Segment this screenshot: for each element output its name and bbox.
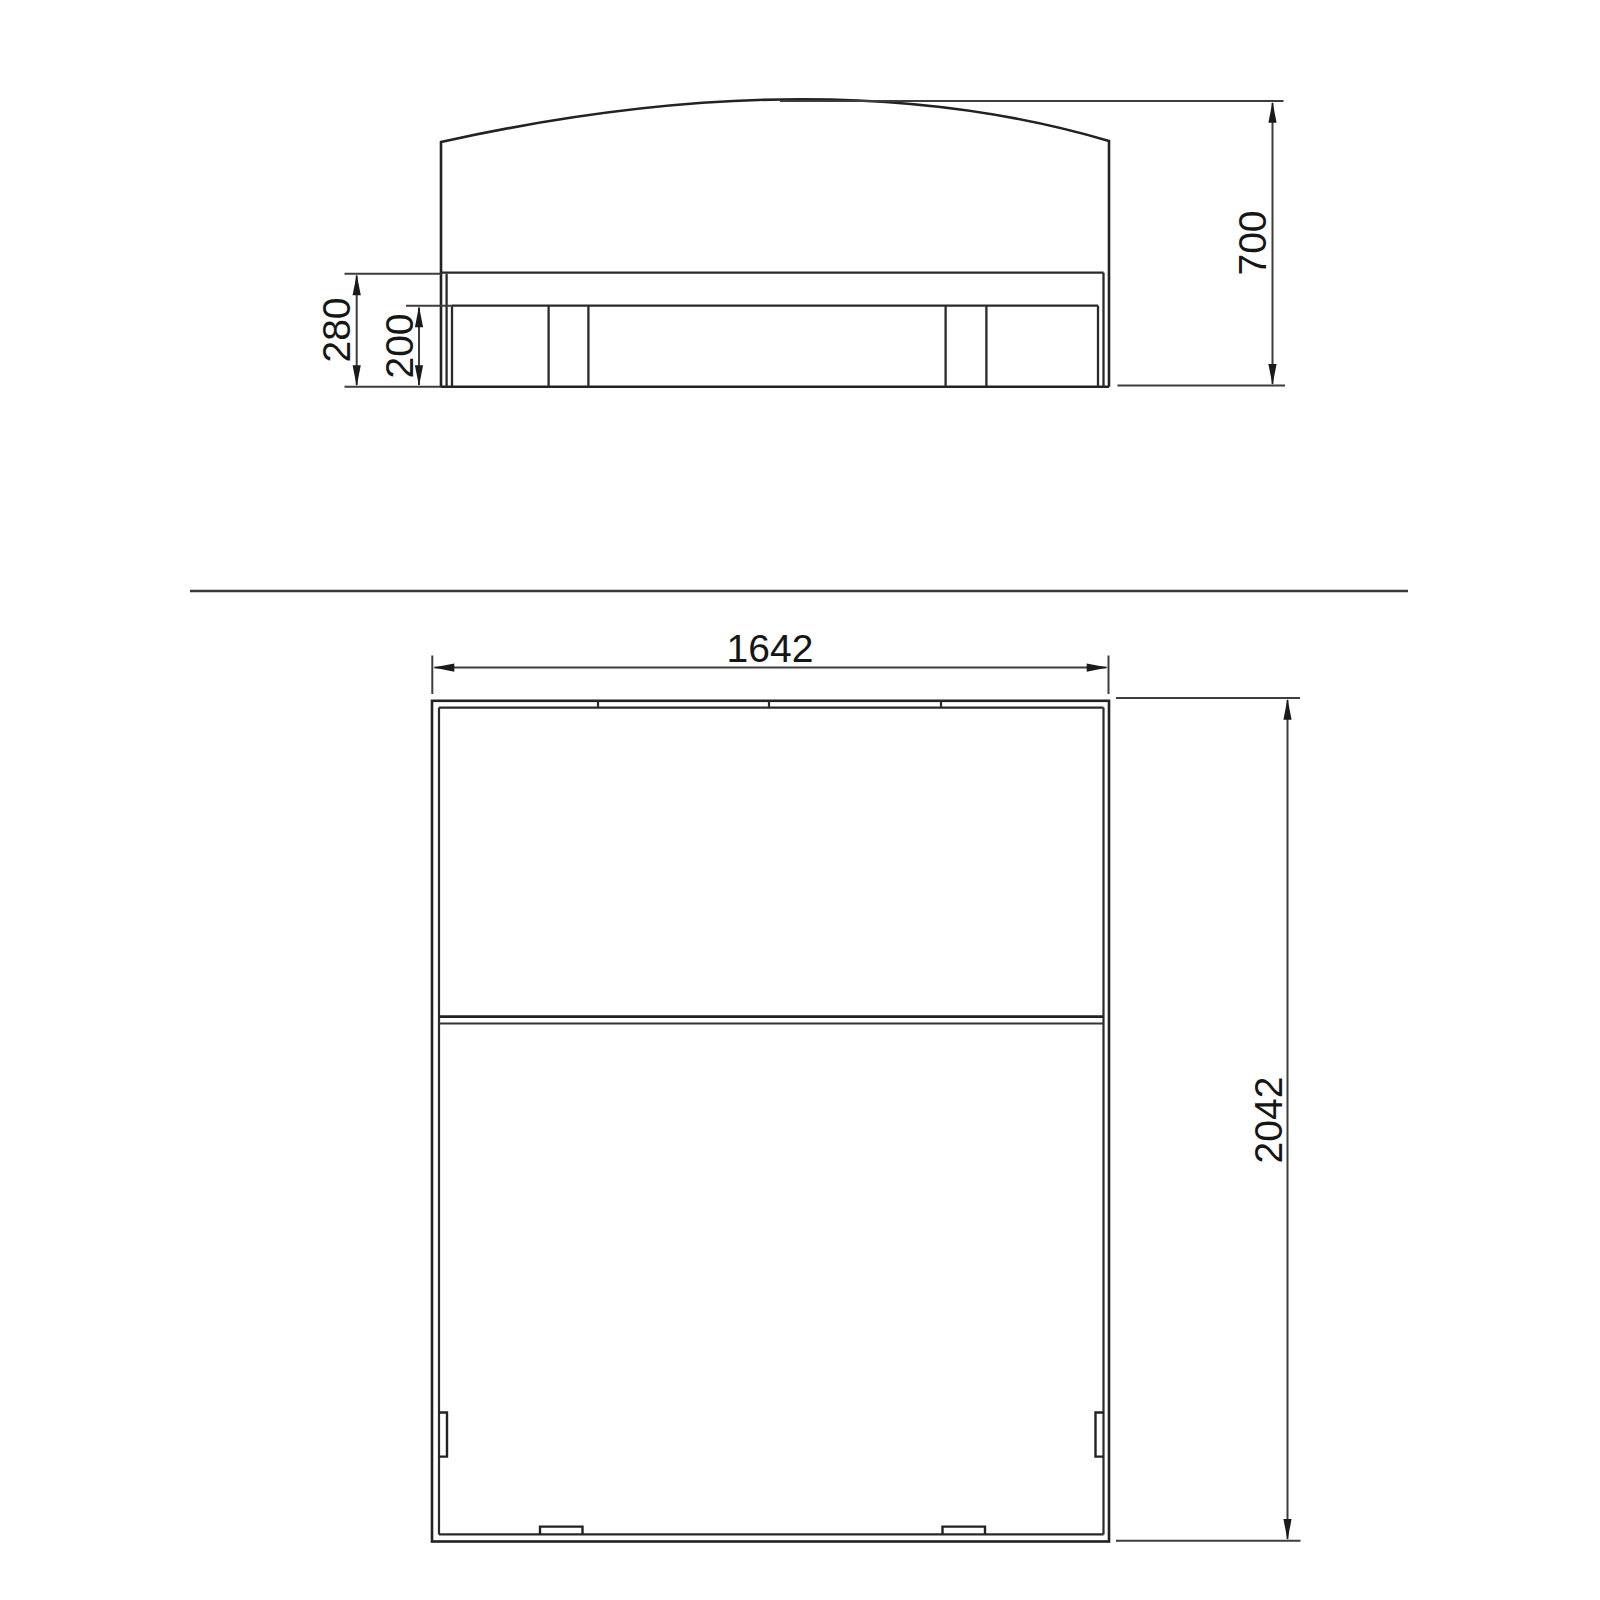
svg-text:280: 280 xyxy=(315,297,358,362)
svg-text:700: 700 xyxy=(1231,210,1274,275)
svg-text:200: 200 xyxy=(378,313,421,378)
svg-text:1642: 1642 xyxy=(727,627,814,670)
svg-text:2042: 2042 xyxy=(1247,1077,1290,1164)
